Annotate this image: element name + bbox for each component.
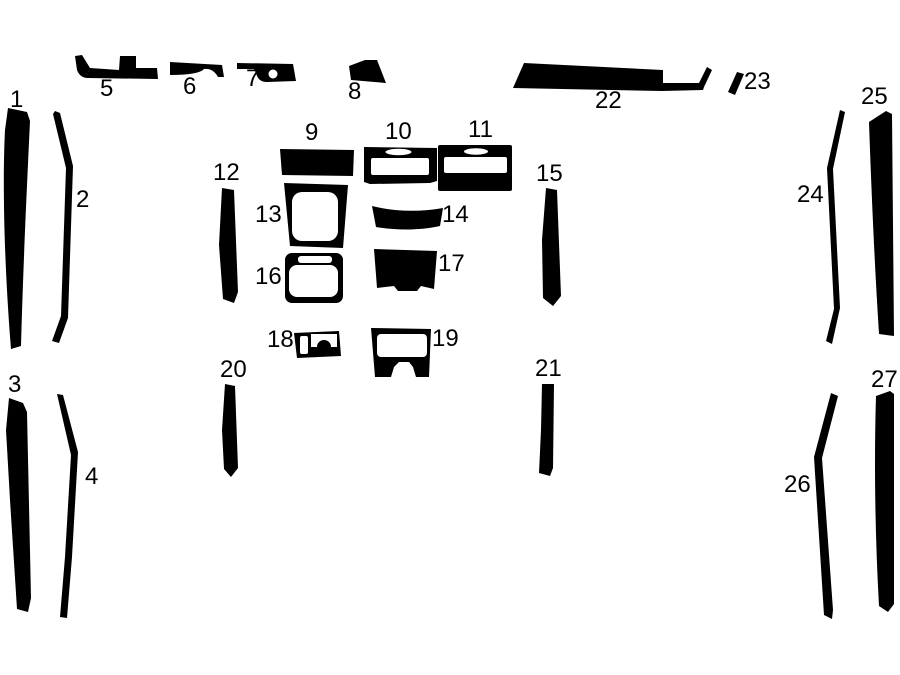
piece-6-label: 6 xyxy=(183,75,196,99)
piece-1-shape xyxy=(4,108,30,349)
piece-25-shape xyxy=(869,111,894,336)
piece-23-shape xyxy=(728,72,744,95)
piece-27-label: 27 xyxy=(871,368,898,392)
piece-10-shape xyxy=(364,147,437,184)
piece-1-body xyxy=(4,108,30,349)
piece-24-label: 24 xyxy=(797,183,824,207)
piece-14-shape xyxy=(372,206,443,230)
piece-16-shape xyxy=(285,253,343,303)
piece-1-label: 1 xyxy=(10,88,23,112)
piece-2-body xyxy=(52,111,73,343)
piece-24-shape xyxy=(826,110,845,344)
piece-11-shape xyxy=(438,145,512,191)
piece-27-shape xyxy=(875,391,894,612)
piece-19-label: 19 xyxy=(432,327,459,351)
piece-15-label: 15 xyxy=(536,162,563,186)
piece-13-label: 13 xyxy=(255,203,282,227)
piece-18-shape xyxy=(294,331,341,358)
piece-4-shape xyxy=(57,394,78,618)
piece-21-body xyxy=(539,384,554,476)
piece-26-label: 26 xyxy=(784,473,811,497)
piece-17-label: 17 xyxy=(438,252,465,276)
piece-20-label: 20 xyxy=(220,358,247,382)
piece-12-body xyxy=(219,188,238,303)
piece-3-shape xyxy=(6,398,31,612)
piece-14-body xyxy=(372,206,443,230)
piece-17-body xyxy=(374,249,437,291)
piece-6-body xyxy=(170,62,224,77)
piece-26-body xyxy=(814,393,838,619)
piece-23-label: 23 xyxy=(744,70,771,94)
piece-19-cutout-1 xyxy=(377,334,427,357)
piece-4-body xyxy=(57,394,78,618)
piece-20-body xyxy=(222,384,238,477)
piece-16-cutout-2 xyxy=(289,265,338,297)
piece-18-label: 18 xyxy=(267,328,294,352)
piece-6-shape xyxy=(170,62,224,77)
piece-3-label: 3 xyxy=(8,373,21,397)
piece-7-cutout-1 xyxy=(269,70,278,79)
piece-10-label: 10 xyxy=(385,120,412,144)
piece-7-label: 7 xyxy=(246,67,259,91)
piece-22-label: 22 xyxy=(595,89,622,113)
piece-24-body xyxy=(826,110,845,344)
piece-21-label: 21 xyxy=(535,357,562,381)
piece-16-cutout-1 xyxy=(298,256,332,263)
dash-kit-diagram-canvas: 1234567891011121314151617181920212223242… xyxy=(0,0,900,675)
piece-10-cutout-2 xyxy=(371,158,429,175)
piece-12-shape xyxy=(219,188,238,303)
piece-20-shape xyxy=(222,384,238,477)
piece-12-label: 12 xyxy=(213,161,240,185)
piece-11-cutout-1 xyxy=(464,148,488,154)
piece-3-body xyxy=(6,398,31,612)
piece-4-label: 4 xyxy=(85,465,98,489)
piece-18-cutout-1 xyxy=(300,336,308,354)
piece-16-label: 16 xyxy=(255,265,282,289)
piece-9-label: 9 xyxy=(305,121,318,145)
piece-23-body xyxy=(728,72,744,95)
piece-26-shape xyxy=(814,393,838,619)
piece-5-label: 5 xyxy=(100,77,113,101)
piece-17-shape xyxy=(374,249,437,291)
piece-2-shape xyxy=(52,111,73,343)
piece-15-body xyxy=(542,188,561,306)
piece-25-label: 25 xyxy=(861,85,888,109)
piece-27-body xyxy=(875,391,894,612)
piece-15-shape xyxy=(542,188,561,306)
piece-5-body xyxy=(75,55,158,79)
piece-13-shape xyxy=(284,183,348,248)
piece-8-label: 8 xyxy=(348,80,361,104)
piece-5-shape xyxy=(75,55,158,79)
piece-13-cutout-1 xyxy=(292,192,338,241)
piece-2-label: 2 xyxy=(76,188,89,212)
piece-10-cutout-1 xyxy=(386,149,412,155)
piece-19-shape xyxy=(371,328,431,377)
piece-9-body xyxy=(280,149,354,176)
piece-11-cutout-2 xyxy=(444,157,507,173)
piece-9-shape xyxy=(280,149,354,176)
piece-25-body xyxy=(869,111,894,336)
piece-14-label: 14 xyxy=(442,203,469,227)
piece-11-label: 11 xyxy=(468,118,493,142)
piece-21-shape xyxy=(539,384,554,476)
